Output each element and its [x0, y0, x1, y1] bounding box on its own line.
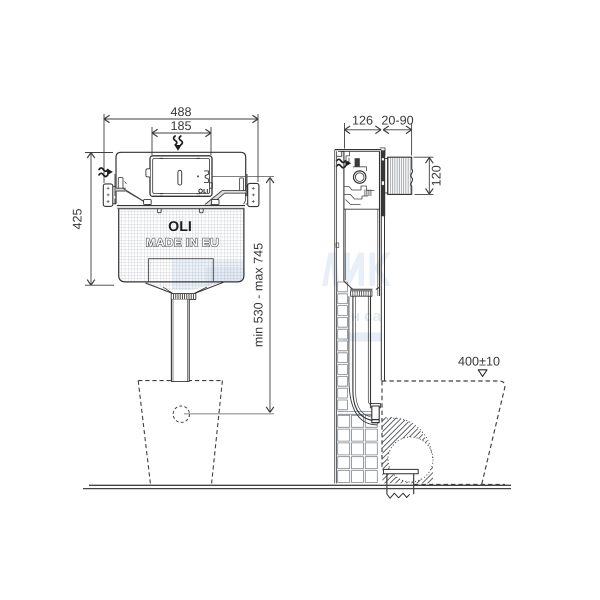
- svg-text:min 530 - max 745: min 530 - max 745: [252, 243, 266, 347]
- svg-text:20-90: 20-90: [381, 114, 413, 128]
- svg-text:425: 425: [71, 208, 85, 229]
- svg-text:488: 488: [170, 105, 191, 119]
- svg-text:MADE IN EU: MADE IN EU: [146, 236, 219, 250]
- svg-text:185: 185: [170, 119, 191, 133]
- svg-text:OLI: OLI: [168, 219, 192, 235]
- svg-text:126: 126: [352, 114, 373, 128]
- svg-text:120: 120: [430, 165, 444, 186]
- svg-text:400±10: 400±10: [458, 355, 500, 369]
